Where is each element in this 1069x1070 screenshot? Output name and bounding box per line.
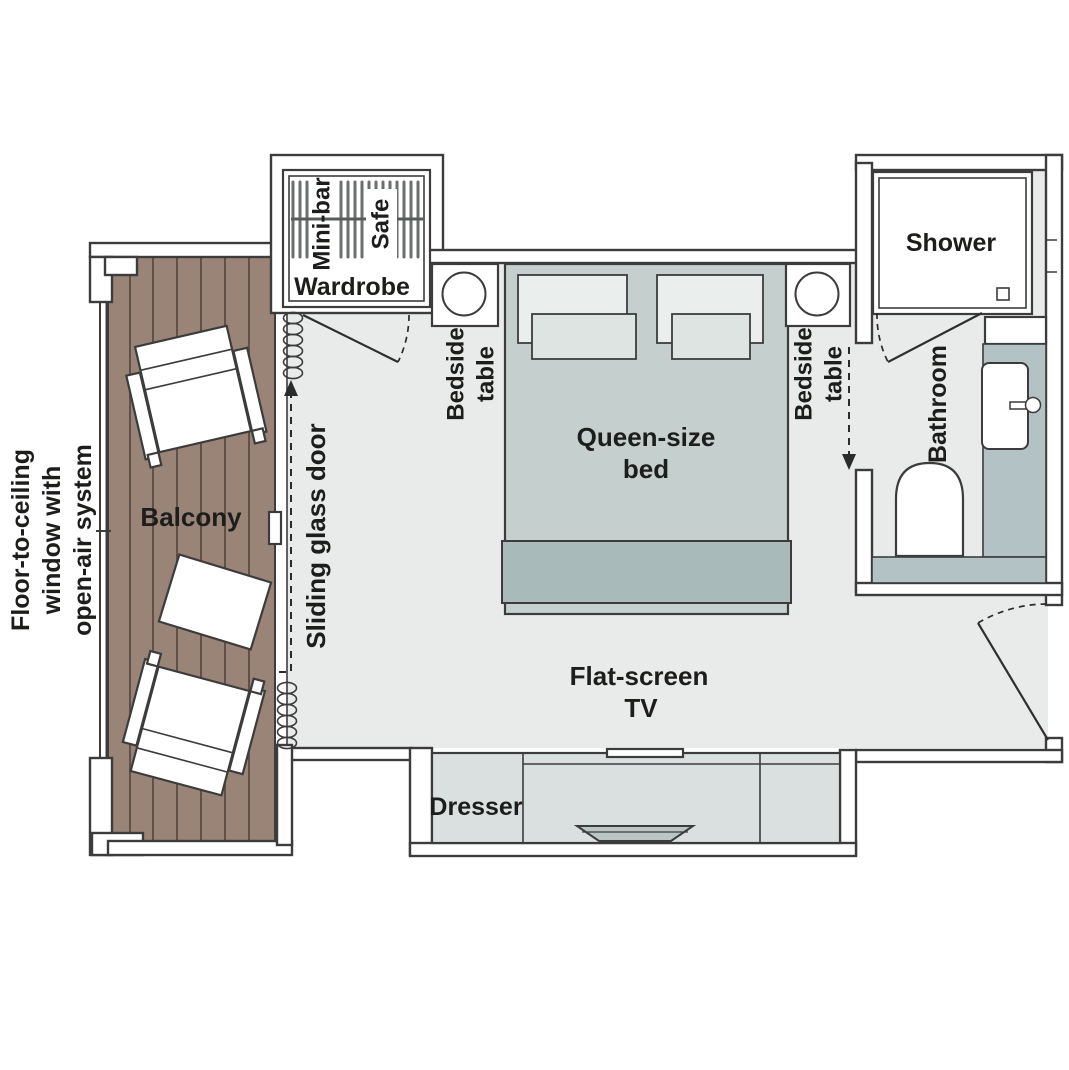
bathroom-left-wall-upper bbox=[856, 163, 872, 343]
dresser-recess-bottom-wall bbox=[410, 843, 856, 856]
pillow-left-inner bbox=[532, 314, 636, 359]
doorway-floor-strip bbox=[856, 343, 872, 470]
bathroom-back-counter bbox=[872, 557, 1046, 583]
balcony-area: Balcony bbox=[108, 255, 275, 845]
dresser-unit: Dresser bbox=[429, 749, 840, 843]
dresser-recess-right-wall bbox=[840, 750, 856, 855]
bathroom-bottom-wall bbox=[856, 583, 1062, 595]
balcony-wall-top bbox=[90, 243, 287, 257]
chair2-foot-left bbox=[250, 679, 264, 694]
sliding-door-bottom-wall bbox=[277, 745, 292, 845]
bathroom-label: Bathroom bbox=[924, 345, 952, 463]
minibar-label: Mini-bar bbox=[309, 177, 336, 270]
chair2-foot-right bbox=[147, 651, 161, 666]
bedroom-bottom-wall-left bbox=[287, 748, 412, 760]
bedroom-bottom-wall-right bbox=[856, 750, 1062, 762]
bed-foot-runner bbox=[502, 541, 791, 603]
bedside-lamp-right bbox=[796, 273, 839, 316]
safe-label: Safe bbox=[368, 199, 395, 250]
tv-label-line1: Flat-screen bbox=[570, 661, 709, 691]
sliding-door-label: Sliding glass door bbox=[301, 423, 331, 648]
bedside-lamp-left bbox=[443, 273, 486, 316]
window-label: Floor-to-ceiling window with open-air sy… bbox=[7, 444, 97, 636]
pillow-right-inner bbox=[672, 314, 750, 359]
bed-label-line2: bed bbox=[623, 454, 669, 484]
tv-wall-bracket bbox=[607, 749, 683, 757]
shower-label: Shower bbox=[906, 229, 997, 257]
bedside-right-label-line1: Bedside bbox=[791, 327, 818, 420]
toilet bbox=[896, 463, 963, 556]
sliding-door-panel bbox=[269, 512, 281, 544]
tv-label-line2: TV bbox=[624, 693, 658, 723]
balcony-wall-topleft-step bbox=[105, 257, 137, 275]
flat-screen-tv bbox=[577, 826, 693, 841]
window-label-line1: Floor-to-ceiling bbox=[7, 449, 35, 631]
chair1-foot-right bbox=[252, 428, 266, 443]
faucet-knob bbox=[1026, 398, 1041, 413]
wardrobe-label: Wardrobe bbox=[294, 273, 410, 301]
bathroom-top-wall bbox=[856, 155, 1062, 170]
window-label-line3: open-air system bbox=[69, 444, 97, 636]
bedside-right-label-line2: table bbox=[821, 346, 848, 402]
balcony-wall-bottom bbox=[108, 841, 292, 855]
dresser-label: Dresser bbox=[429, 793, 522, 821]
floor-plan-page: Balcony bbox=[0, 0, 1069, 1070]
right-exterior-wall bbox=[1046, 155, 1062, 605]
bedroom-top-wall bbox=[428, 250, 860, 263]
bed-label-line1: Queen-size bbox=[577, 422, 716, 452]
queen-bed: Queen-size bed bbox=[502, 264, 791, 614]
bedside-left-label-line1: Bedside bbox=[443, 327, 470, 420]
stateroom-floor-plan: Balcony bbox=[0, 0, 1069, 1070]
window-label-line2: window with bbox=[38, 466, 66, 616]
bedside-left-label-line2: table bbox=[473, 346, 500, 402]
bathroom-left-wall-lower bbox=[856, 470, 872, 592]
balcony-label: Balcony bbox=[140, 502, 242, 532]
bathroom-ledge bbox=[985, 317, 1046, 344]
chair1-foot-left bbox=[148, 452, 162, 467]
